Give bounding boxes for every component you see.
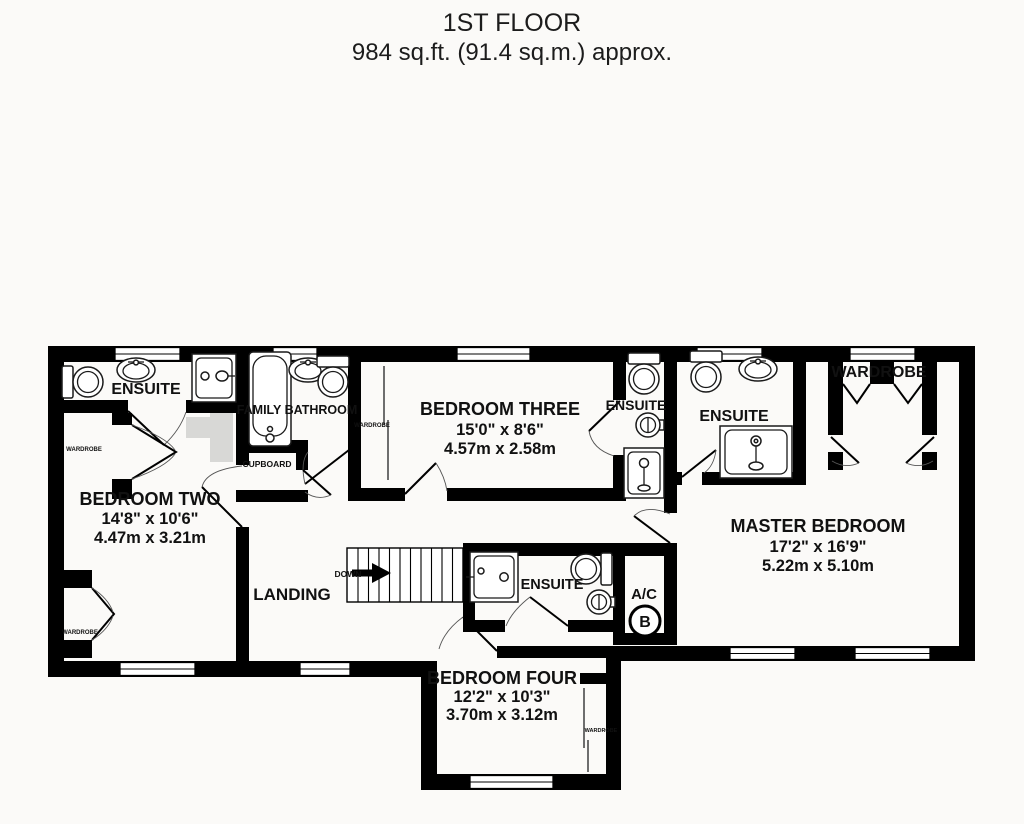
bedroom-three-size-imperial: 15'0" x 8'6" xyxy=(456,421,544,439)
window xyxy=(470,776,553,789)
staircase: DOWN xyxy=(335,548,463,602)
wardrobe-bedroom-two-upper-doors xyxy=(132,425,176,479)
landing-label: LANDING xyxy=(253,585,330,604)
bedroom-three-label: BEDROOM THREE xyxy=(420,399,580,419)
sink-icon xyxy=(587,590,615,614)
shaded-area xyxy=(186,405,233,462)
ensuite-master-label: ENSUITE xyxy=(699,408,769,425)
toilet-icon xyxy=(690,351,722,392)
toilet-icon xyxy=(628,353,660,394)
shower-icon xyxy=(720,426,792,478)
bathtub-icon xyxy=(249,352,291,446)
master-bedroom-label: MASTER BEDROOM xyxy=(731,516,906,536)
wardrobe-bedroom-two-upper-label: WARDROBE xyxy=(66,447,102,453)
wardrobe-master-doors xyxy=(831,384,934,466)
cupboard-label: CUPBOARD xyxy=(242,459,291,469)
window xyxy=(300,663,350,676)
floorplan-drawing: B DOWN ENSUITE FAMILY BATHROOM CUPBOARD xyxy=(0,0,1024,824)
ensuite-bedroom-three-label: ENSUITE xyxy=(606,397,667,413)
bedroom-three-size-metric: 4.57m x 2.58m xyxy=(444,440,556,458)
bedroom-four-size-imperial: 12'2" x 10'3" xyxy=(454,688,551,706)
window xyxy=(855,648,930,660)
door-family-bathroom xyxy=(303,450,349,484)
sink-icon xyxy=(739,357,777,381)
window xyxy=(115,348,180,361)
toilet-icon xyxy=(62,366,103,398)
window xyxy=(850,348,915,361)
ensuite-landing-label: ENSUITE xyxy=(521,577,584,593)
wardrobe-bedroom-four-label: WARDROBE xyxy=(585,728,618,734)
ensuite-nw-label: ENSUITE xyxy=(111,381,181,398)
shower-icon xyxy=(466,552,518,602)
wardrobe-bedroom-two-lower-label: WARDROBE xyxy=(62,630,98,636)
boiler-symbol: B xyxy=(630,606,660,636)
master-bedroom-size-metric: 5.22m x 5.10m xyxy=(762,557,874,575)
wardrobe-bedroom-three-label: WARDROBE xyxy=(354,423,390,429)
floorplan-page: 1ST FLOOR 984 sq.ft. (91.4 sq.m.) approx… xyxy=(0,0,1024,824)
window xyxy=(730,648,795,660)
shower-icon xyxy=(624,448,664,498)
sink-icon xyxy=(117,358,155,382)
boiler-letter: B xyxy=(639,614,651,631)
bedroom-four-label: BEDROOM FOUR xyxy=(427,668,577,688)
window xyxy=(120,663,195,676)
bedroom-four-size-metric: 3.70m x 3.12m xyxy=(446,706,558,724)
family-bathroom-label: FAMILY BATHROOM xyxy=(237,403,358,417)
toilet-icon xyxy=(317,356,349,397)
ac-label: A/C xyxy=(631,586,657,603)
window xyxy=(457,348,530,361)
door-master-bedroom xyxy=(634,509,670,543)
master-bedroom-size-imperial: 17'2" x 16'9" xyxy=(770,538,867,556)
door-bedroom-three xyxy=(405,463,447,494)
sink-icon xyxy=(636,413,664,437)
bedroom-two-size-metric: 4.47m x 3.21m xyxy=(94,529,206,547)
shower-icon xyxy=(192,354,236,402)
wardrobe-master-label: WARDROBE xyxy=(831,364,926,381)
bedroom-two-size-imperial: 14'8" x 10'6" xyxy=(102,510,199,528)
stairs-down-label: DOWN xyxy=(335,569,362,579)
bedroom-two-label: BEDROOM TWO xyxy=(80,489,221,509)
